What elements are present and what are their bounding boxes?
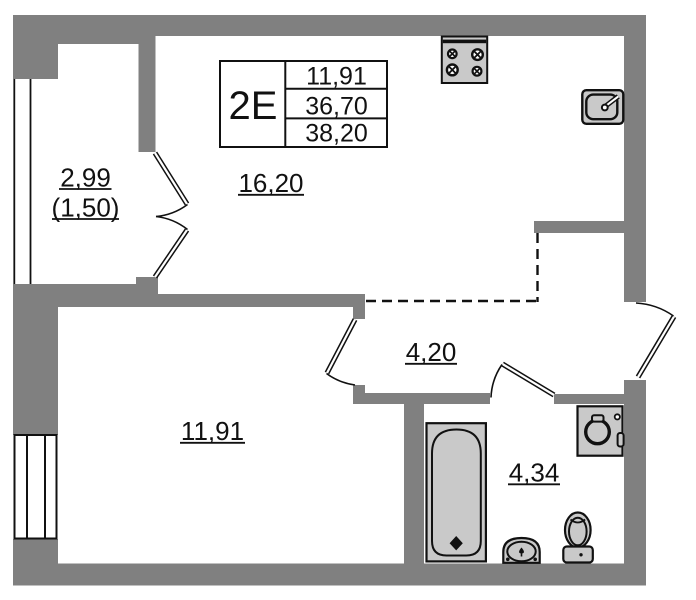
svg-text:11,91: 11,91 (181, 416, 244, 446)
svg-text:36,70: 36,70 (305, 93, 368, 121)
svg-text:2,99: 2,99 (60, 163, 111, 193)
svg-text:4,34: 4,34 (509, 458, 560, 488)
svg-text:38,20: 38,20 (305, 120, 368, 148)
svg-text:2E: 2E (229, 84, 278, 128)
svg-text:(1,50): (1,50) (52, 193, 120, 223)
svg-text:11,91: 11,91 (306, 63, 367, 91)
svg-text:16,20: 16,20 (238, 168, 303, 198)
svg-text:4,20: 4,20 (406, 337, 457, 367)
